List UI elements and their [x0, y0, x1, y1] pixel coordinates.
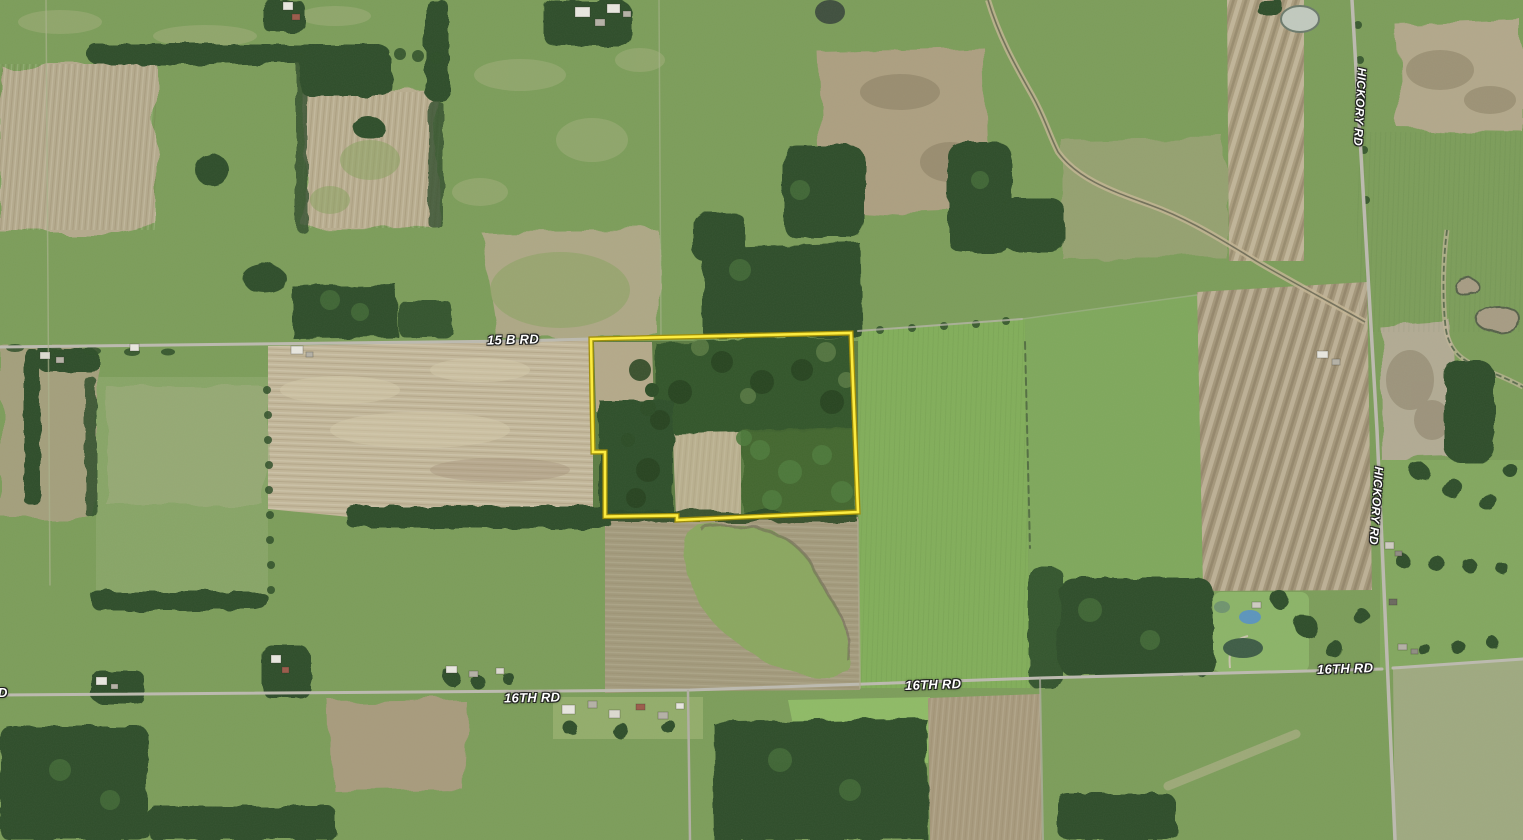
road-label-15b: 15 B RD — [487, 331, 539, 347]
satellite-imagery — [0, 0, 1523, 840]
road-label-16th-right: 16TH RD — [1317, 660, 1374, 677]
road-label-16th-partial: D — [0, 685, 8, 700]
road-label-16th-mid: 16TH RD — [905, 676, 962, 693]
photo-grain-overlay — [0, 0, 1523, 840]
aerial-map: 15 B RD HICKORY RD HICKORY RD D 16TH RD … — [0, 0, 1523, 840]
road-label-16th-left: 16TH RD — [504, 690, 561, 706]
